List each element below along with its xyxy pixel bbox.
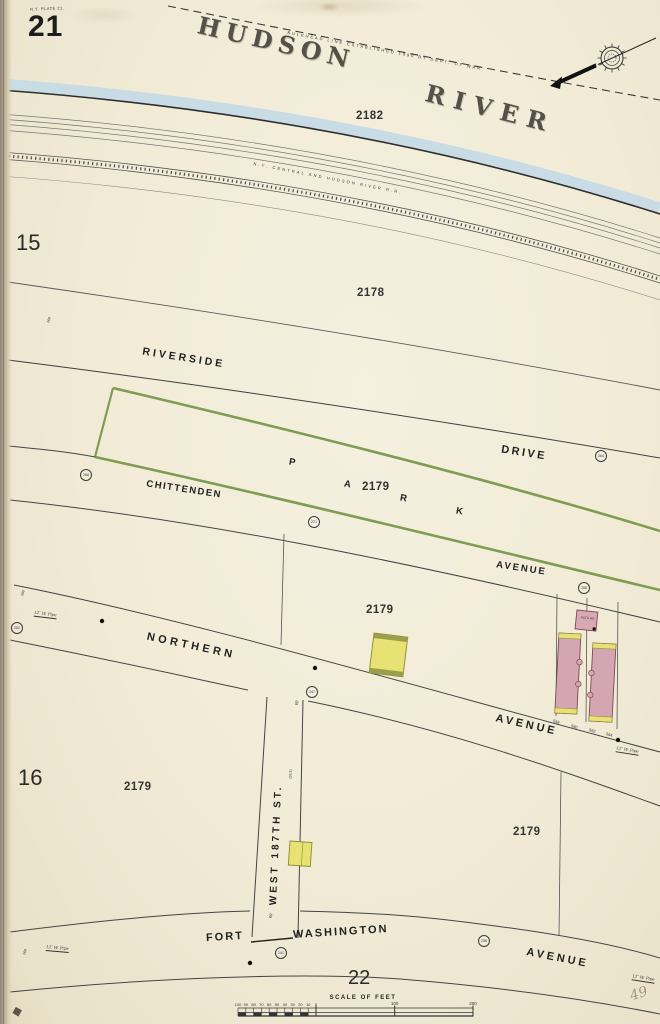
street-label-fort: FORT bbox=[206, 930, 245, 944]
compass-rose-icon bbox=[550, 38, 656, 89]
street-note-187th: (26.3) bbox=[288, 769, 292, 778]
building-pink-rowhouse-1 bbox=[555, 633, 584, 714]
corner-value: 258 bbox=[581, 586, 587, 590]
page-binding-edge bbox=[0, 0, 12, 1024]
neighbor-plate-16: 16 bbox=[18, 765, 42, 791]
chittenden-avenue-lines bbox=[8, 446, 660, 622]
corner-marker: 252 bbox=[11, 622, 23, 634]
sanborn-map-page: N.Y. PLATE 21. 21 15 16 22 HUDSON RIVER … bbox=[0, 0, 660, 1024]
map-linework bbox=[0, 0, 660, 1024]
block-number-2179-east: 2179 bbox=[513, 826, 541, 838]
block-number-2179-mid: 2179 bbox=[366, 604, 394, 616]
corner-marker: 264 bbox=[595, 450, 607, 462]
block-number-2179-park: 2179 bbox=[362, 481, 390, 493]
corner-value: 247 bbox=[309, 690, 315, 694]
building-pink-rowhouse-2 bbox=[586, 643, 616, 722]
hudson-shoreline bbox=[0, 84, 660, 254]
block-number-2178: 2178 bbox=[357, 287, 385, 299]
page-binding-line bbox=[3, 0, 4, 1024]
lot-lines bbox=[281, 534, 618, 936]
corner-marker: 268 bbox=[80, 469, 92, 481]
corner-value: 268 bbox=[83, 473, 89, 477]
plate-number: 21 bbox=[28, 10, 63, 44]
corner-marker: 241 bbox=[275, 947, 287, 959]
corner-value: 252 bbox=[14, 626, 20, 630]
block-boundaries bbox=[8, 282, 660, 458]
corner-value: 241 bbox=[278, 951, 284, 955]
building-yellow-store bbox=[369, 633, 408, 677]
corner-marker: 271 bbox=[308, 516, 320, 528]
neighbor-plate-15: 15 bbox=[16, 230, 40, 256]
width-mark: 60' bbox=[294, 699, 300, 705]
corner-value: 271 bbox=[311, 520, 317, 524]
scale-major-tick: 100 bbox=[389, 1001, 401, 1006]
corner-value: 236 bbox=[481, 939, 487, 943]
corner-marker: 258 bbox=[578, 582, 590, 594]
scale-tick: 0 bbox=[311, 1002, 321, 1007]
building-yellow-187th bbox=[288, 841, 312, 866]
page-nick bbox=[12, 1007, 22, 1017]
block-number-2182: 2182 bbox=[356, 110, 384, 122]
street-width-187th: 60' bbox=[268, 912, 274, 918]
neighbor-plate-22: 22 bbox=[348, 967, 370, 990]
scale-major-tick: 200 bbox=[467, 1001, 479, 1006]
corner-marker: 247 bbox=[306, 686, 318, 698]
scale-bar bbox=[238, 1006, 473, 1017]
block-number-2179-west: 2179 bbox=[124, 781, 152, 793]
corner-value: 264 bbox=[598, 454, 604, 458]
corner-marker: 236 bbox=[478, 935, 490, 947]
